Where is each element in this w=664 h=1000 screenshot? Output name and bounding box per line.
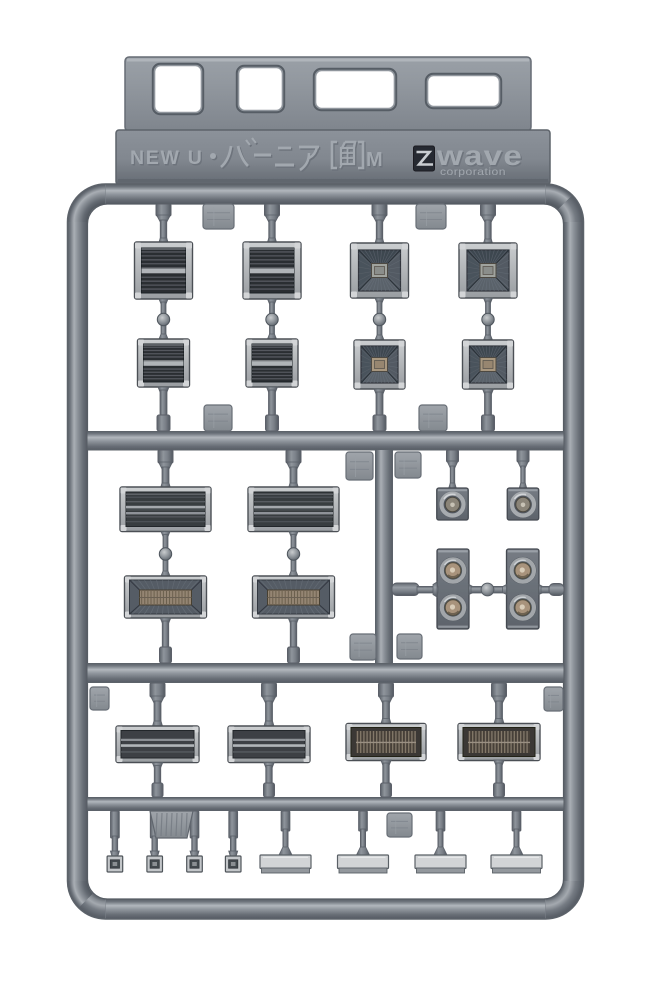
svg-text:NEW U: NEW U <box>130 147 204 169</box>
svg-text:corporation: corporation <box>440 166 506 178</box>
svg-text:M: M <box>366 149 383 171</box>
